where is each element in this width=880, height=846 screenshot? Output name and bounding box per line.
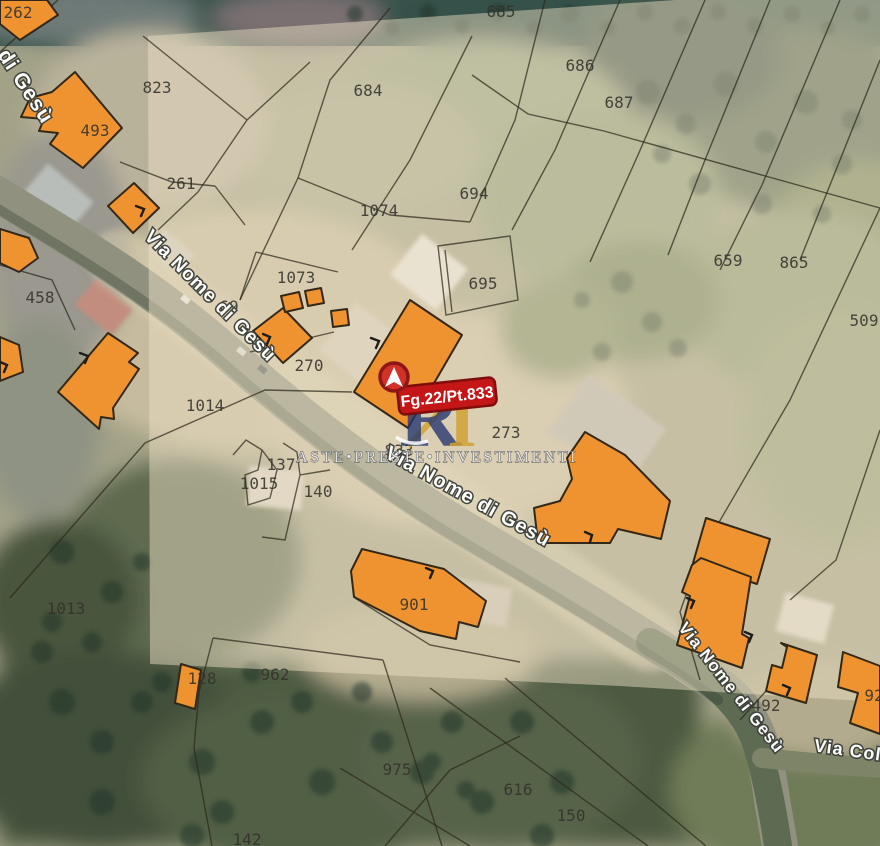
parcel-label: 686	[566, 56, 595, 75]
parcel-label: 493	[81, 121, 110, 140]
parcel-label: 684	[354, 81, 383, 100]
parcel-label: 687	[605, 93, 634, 112]
building-small-c	[331, 309, 349, 327]
parcel-label: 1073	[277, 268, 316, 287]
parcel-label: 137	[267, 455, 296, 474]
parcel-label: 262	[4, 3, 33, 22]
parcel-label: 1074	[360, 201, 399, 220]
parcel-label: 823	[143, 78, 172, 97]
parcel-label: 1015	[240, 474, 279, 493]
parcel-label: 458	[26, 288, 55, 307]
watermark-text: ASTE•PRESTE•INVESTIMENTI	[296, 449, 578, 466]
parcel-label: 695	[469, 274, 498, 293]
parcel-label: 1013	[47, 599, 86, 618]
parcel-label: 140	[304, 482, 333, 501]
parcel-label: 962	[261, 665, 290, 684]
parcel-label: 142	[233, 830, 262, 846]
parcel-label: 865	[780, 253, 809, 272]
parcel-label: 694	[460, 184, 489, 203]
parcel-label: 509	[850, 311, 879, 330]
parcel-label: 128	[188, 669, 217, 688]
parcel-label: 901	[400, 595, 429, 614]
building-small-a	[281, 292, 303, 312]
parcel-label: 659	[714, 251, 743, 270]
parcel-label: 150	[557, 806, 586, 825]
parcel-label: 92	[864, 686, 880, 705]
parcel-label: 261	[167, 174, 196, 193]
map-viewport[interactable]: 685 686 687 684 823 493 262 261 1074 694…	[0, 0, 880, 846]
parcel-label: 616	[504, 780, 533, 799]
cadastral-map-svg: 685 686 687 684 823 493 262 261 1074 694…	[0, 0, 880, 846]
parcel-label: 270	[295, 356, 324, 375]
parcel-label: 1014	[186, 396, 225, 415]
parcel-label: 685	[487, 2, 516, 21]
building-small-b	[305, 288, 324, 306]
parcel-label: 975	[383, 760, 412, 779]
parcel-label: 273	[492, 423, 521, 442]
